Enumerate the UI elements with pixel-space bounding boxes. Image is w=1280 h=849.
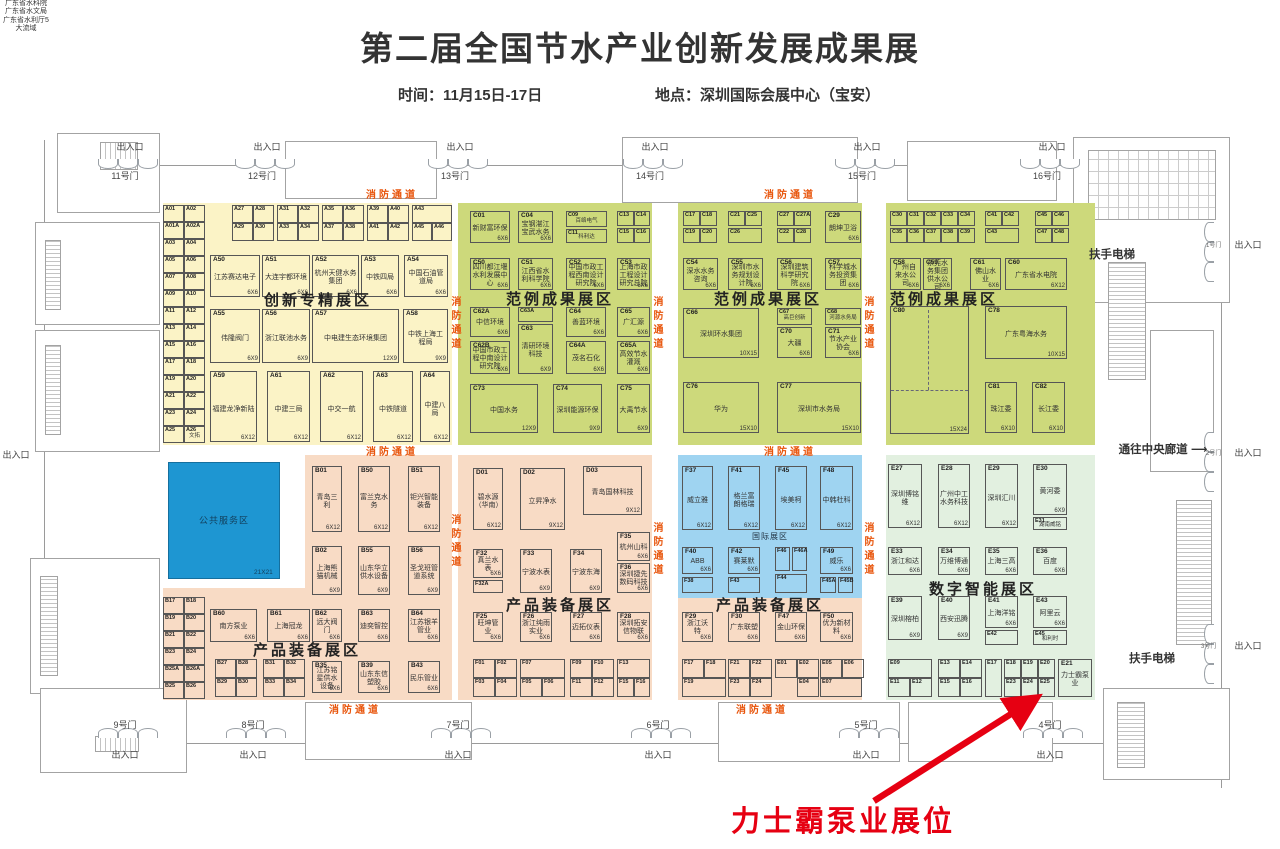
booth-id: E42 <box>987 631 997 638</box>
booth-id: E21 <box>1061 660 1073 668</box>
booth-id: C43 <box>987 229 997 236</box>
booth-F41: F41格兰富 朗格瑞6X12 <box>728 466 760 530</box>
booth-size: 6X12 <box>434 435 448 441</box>
booth-id: F10 <box>594 660 603 667</box>
booth-B18: B18 <box>184 597 205 614</box>
booth-id: E25 <box>1040 679 1050 686</box>
fire-lane-label-v2: 消防通道 <box>860 296 875 352</box>
booth-name: 深圳榕柏 <box>890 616 921 624</box>
booth-id: C41 <box>987 212 997 219</box>
booth-size: 6X9 <box>247 356 258 362</box>
entrance-label-0: 出入口 <box>116 140 143 153</box>
booth-size: 6X6 <box>700 567 711 573</box>
booth-F15: F15 <box>617 678 634 697</box>
booth-name: 高效节水灌溉 <box>619 351 649 367</box>
booth-id: B26 <box>186 683 196 690</box>
booth-id: A51 <box>265 256 277 264</box>
booth-C55: C55深圳市水务规划设计院6X6 <box>728 258 763 290</box>
booth-C04: C04宝钢湛江宝武水务6X6 <box>518 211 553 243</box>
booth-C22: C22 <box>777 228 794 243</box>
booth-E34: E34万维博通6X6 <box>938 547 970 575</box>
booth-id: C61 <box>973 259 985 267</box>
booth-F38: F38 <box>682 577 713 593</box>
booth-name: 阿里云 <box>1035 609 1066 617</box>
booth-id: C82 <box>1035 383 1047 391</box>
booth-name: 西安迅腾 <box>940 616 969 624</box>
booth-F50: F50优为新材料6X6 <box>820 612 853 642</box>
booth-id: C01 <box>473 212 485 220</box>
booth-C13: C13 <box>617 211 634 226</box>
door-label-14号门: 14号门 <box>636 169 664 182</box>
zone-label-digital: 数字智能展区 <box>929 578 1037 599</box>
booth-name: 珠江委 <box>987 406 1016 414</box>
booth-id: A35 <box>324 206 334 213</box>
booth-size: 6X6 <box>329 686 340 692</box>
booth-size: 6X9 <box>377 588 388 594</box>
booth-id: A09 <box>165 291 175 298</box>
booth-C31: C31 <box>907 211 924 226</box>
booth-id: B50 <box>361 467 373 475</box>
fire-lane-label-v3: 消防通道 <box>447 514 462 570</box>
booth-E09: E09 <box>888 659 932 678</box>
booth-name: 江西省水利科学院 <box>520 267 552 283</box>
booth-C58: C58广州自来水公司6X6 <box>890 258 921 290</box>
booth-id: B43 <box>411 662 423 670</box>
booth-id: C45 <box>1037 212 1047 219</box>
booth-A30: A30 <box>253 223 274 241</box>
booth-name: 文拓 <box>185 433 203 439</box>
booth-id: A12 <box>186 308 196 315</box>
booth-name: 大连宇都环境 <box>264 274 308 282</box>
booth-A09: A09 <box>163 290 184 307</box>
booth-id: A25 <box>165 427 175 434</box>
entrance-label-4: 出入口 <box>853 140 880 153</box>
booth-B43: B43民乐管业6X6 <box>408 661 440 693</box>
door-arcs-icon <box>1204 624 1214 684</box>
booth-size: 6X6 <box>1005 621 1016 627</box>
zone-label-service: 公共服务区 <box>199 514 249 527</box>
booth-A43: A43 <box>412 205 452 223</box>
booth-size: 15X10 <box>740 426 757 432</box>
booth-F46A: F46A <box>792 547 807 571</box>
booth-A31: A31 <box>277 205 298 223</box>
booth-name: 华为 <box>685 406 756 414</box>
booth-C59: C59东莞水务集团供水公司6X6 <box>923 258 952 290</box>
booth-C67: C67高巨创新 <box>777 308 812 325</box>
booth-id: E12 <box>912 679 922 686</box>
booth-size: 6X12 <box>374 525 388 531</box>
booth-id: C21 <box>730 212 740 219</box>
booth-id: A07 <box>165 274 175 281</box>
booth-id: A03 <box>165 240 175 247</box>
booth-B62: B62远大阀门6X6 <box>312 609 342 642</box>
booth-id: C16 <box>636 229 646 236</box>
booth-size: 6X12 <box>241 435 255 441</box>
booth-id: A46 <box>434 224 444 231</box>
door-label-1号门: 1号门 <box>1206 240 1221 249</box>
booth-id: C47 <box>1037 229 1047 236</box>
booth-id: F06 <box>544 679 553 686</box>
booth-id: E39 <box>891 597 903 605</box>
booth-F45B: F45B <box>838 577 853 593</box>
booth-E07: E07 <box>820 678 862 697</box>
booth-id: A40 <box>390 206 400 213</box>
booth-id: B31 <box>265 660 275 667</box>
booth-id: C63 <box>521 325 533 333</box>
booth-E06: E06 <box>842 659 864 678</box>
booth-F01: F01 <box>473 659 495 678</box>
booth-C70: C70大疆6X6 <box>777 327 812 358</box>
booth-size: 6X9 <box>329 588 340 594</box>
booth-name: 威立雅 <box>684 497 712 505</box>
booth-A21: A21 <box>163 392 184 409</box>
booth-id: A27 <box>234 206 244 213</box>
booth-id: B02 <box>315 547 327 555</box>
booth-C16: C16 <box>634 228 650 243</box>
booth-A02: A02 <box>184 205 205 222</box>
booth-F03: F03 <box>473 678 495 697</box>
booth-B24: B24 <box>184 648 205 665</box>
booth-name: 大禹节水 <box>619 407 649 415</box>
booth-C01: C01新财富环保6X6 <box>470 211 510 243</box>
booth-A17: A17 <box>163 358 184 375</box>
booth-id: F03 <box>475 679 484 686</box>
booth-name: 江苏赛达电子 <box>212 274 258 282</box>
booth-name: 中电建生态环境集团 <box>315 335 397 343</box>
booth-size: 6X6 <box>637 367 648 373</box>
booth-A13: A13 <box>163 324 184 341</box>
booth-A55: A55伟隆阀门6X9 <box>210 309 260 363</box>
booth-id: A64 <box>423 372 435 380</box>
booth-name: 青岛三利 <box>314 494 341 510</box>
booth-id: F48 <box>823 467 834 475</box>
booth-name: 山东东信塑胶 <box>360 670 389 686</box>
booth-id: F38 <box>684 578 693 585</box>
booth-C39: C39 <box>958 228 975 243</box>
booth-size: 6X6 <box>1054 621 1065 627</box>
booth-id: F21 <box>730 660 739 667</box>
note-0: 扶手电梯 <box>1089 246 1135 262</box>
booth-id: C28 <box>796 229 806 236</box>
booth-C34: C34 <box>958 211 975 226</box>
booth-id: C18 <box>702 212 712 219</box>
fire-lane-label-v4: 消防通道 <box>649 522 664 578</box>
booth-B21: B21 <box>163 631 184 648</box>
booth-name: 浙江和达 <box>890 558 921 566</box>
booth-id: A32 <box>300 206 310 213</box>
booth-id: A53 <box>364 256 376 264</box>
zone-size-service: 21X21 <box>254 569 273 576</box>
booth-size: 6X6 <box>377 686 388 692</box>
booth-id: B27 <box>217 660 227 667</box>
booth-id: F19 <box>684 679 693 686</box>
door-label-16号门: 16号门 <box>1033 169 1061 182</box>
entrance-label-3: 出入口 <box>641 140 668 153</box>
booth-size: 6X6 <box>637 330 648 336</box>
booth-id: C62A <box>473 308 490 316</box>
booth-size: 6X9 <box>589 586 600 592</box>
booth-size: 6X6 <box>840 567 851 573</box>
booth-id: B22 <box>186 632 196 639</box>
booth-id: C39 <box>960 229 970 236</box>
booth-F25: F25旺坤管业6X6 <box>473 612 503 642</box>
booth-id: E35 <box>988 548 1000 556</box>
booth-B02: B02上海熊猫机械6X9 <box>312 546 342 595</box>
booth-A18: A18 <box>184 358 205 375</box>
booth-C64A: C64A茂名石化6X6 <box>566 341 606 374</box>
booth-id: C66 <box>686 309 698 317</box>
booth-B25: B25 <box>163 682 184 699</box>
booth-id: F04 <box>497 679 506 686</box>
fire-lane-label-v5: 消防通道 <box>860 522 875 578</box>
booth-C09: C09百络电气 <box>566 211 607 227</box>
booth-F09: F09 <box>570 659 592 678</box>
booth-id: F22 <box>752 660 761 667</box>
booth-F04: F04 <box>495 678 517 697</box>
booth-id: C38 <box>943 229 953 236</box>
booth-id: E28 <box>941 465 953 473</box>
booth-E23: E23 <box>1004 678 1021 697</box>
booth-E11: E11 <box>888 678 910 697</box>
booth-E42: E42 <box>985 630 1018 645</box>
booth-id: B64 <box>411 610 423 618</box>
booth-name: 上海洋铭 <box>987 609 1017 617</box>
booth-C25: C25 <box>745 211 762 226</box>
booth-id: A13 <box>165 325 175 332</box>
booth-size: 6X12 <box>326 525 340 531</box>
booth-E43: E43阿里云6X6 <box>1033 596 1067 628</box>
booth-size: 6X6 <box>589 635 600 641</box>
door-label-4号门: 4号门 <box>1038 718 1061 731</box>
booth-id: F15 <box>619 679 628 686</box>
booth-B26A: B26A <box>184 665 205 682</box>
booth-C82: C82长江委6X10 <box>1032 382 1065 433</box>
booth-A26: A26文拓 <box>184 426 205 443</box>
booth-E02: E02 <box>797 659 819 678</box>
booth-C52: C52中国市政工程西南设计研究院6X6 <box>566 258 606 290</box>
booth-id: C14 <box>636 212 646 219</box>
booth-name: 民乐管业 <box>410 674 439 682</box>
booth-size: 6X6 <box>593 367 604 373</box>
booth-B35: B35江苏铭星供水设备6X6 <box>312 661 342 693</box>
booth-id: A56 <box>265 310 277 318</box>
booth-B20: B20 <box>184 614 205 631</box>
booth-F34: F34宁波东海6X9 <box>570 549 602 593</box>
booth-F30: F30广东联塑6X6 <box>728 612 760 642</box>
booth-size: 6X6 <box>490 635 501 641</box>
booth-id: C51 <box>521 259 533 267</box>
booth-F22: F22 <box>750 659 772 678</box>
booth-A46: A46 <box>432 223 452 241</box>
booth-C43: C43 <box>985 228 1019 243</box>
booth-size: 6X6 <box>957 568 968 574</box>
booth-D02: D02立昇净水9X12 <box>520 468 565 530</box>
booth-name: 中建八局 <box>422 402 449 418</box>
booth-id: B51 <box>411 467 423 475</box>
booth-A64: A64中建八局6X12 <box>420 371 450 442</box>
booth-name: 清研环境科技 <box>520 343 552 359</box>
booth-A07: A07 <box>163 273 184 290</box>
booth-name: 上海三高 <box>987 558 1017 566</box>
booth-E31: E31湖南威铭 <box>1033 517 1067 530</box>
entrance-label-14: 出入口 <box>1234 446 1261 459</box>
booth-size: 6X6 <box>1054 568 1065 574</box>
booth-size: 6X9 <box>297 356 308 362</box>
booth-name: 中铁上海工程局 <box>405 331 446 347</box>
booth-name: 远大阀门 <box>314 619 341 635</box>
booth-name: 格兰富 朗格瑞 <box>730 493 759 509</box>
booth-id: A63 <box>376 372 388 380</box>
booth-name: 中韩杜科 <box>822 497 852 505</box>
booth-A37: A37 <box>322 223 343 241</box>
booth-size: 6X6 <box>637 554 648 560</box>
booth-id: F13 <box>619 660 628 667</box>
booth-size: 6X12 <box>1051 283 1065 289</box>
door-label-6号门: 6号门 <box>646 718 669 731</box>
booth-id: E04 <box>799 679 809 686</box>
booth-id: C27 <box>779 212 789 219</box>
booth-name: 上海熊猫机械 <box>314 565 341 581</box>
booth-C54: C54深水水务咨询6X6 <box>683 258 718 290</box>
booth-id: E11 <box>890 679 899 686</box>
booth-id: B25A <box>165 666 179 673</box>
booth-id: F40 <box>685 548 696 556</box>
booth-F06: F06 <box>542 678 565 697</box>
booth-id: B56 <box>411 547 423 555</box>
booth-F12: F12 <box>592 678 614 697</box>
door-label-15号门: 15号门 <box>848 169 876 182</box>
booth-id: F18 <box>706 660 715 667</box>
door-arcs-icon <box>98 159 158 169</box>
booth-id: F41 <box>731 467 742 475</box>
booth-size: 6X6 <box>497 236 508 242</box>
booth-A50: A50江苏赛达电子6X6 <box>210 255 260 297</box>
zone-label-equipment-3: 产品装备展区 <box>716 594 824 615</box>
c80-divider-h <box>891 390 968 391</box>
fire-lane-label-h3: 消防通道 <box>764 443 816 458</box>
booth-id: A23 <box>165 410 175 417</box>
note-1: 扶手电梯 <box>1129 650 1175 666</box>
booth-id: E36 <box>1036 548 1048 556</box>
booth-id: C74 <box>556 385 568 393</box>
booth-id: C64A <box>569 342 586 350</box>
door-arcs-icon <box>235 159 295 169</box>
booth-size: 6X12 <box>397 435 411 441</box>
booth-id: A11 <box>165 308 175 315</box>
booth-id: E24 <box>1023 679 1033 686</box>
booth-id: A02 <box>186 206 196 213</box>
booth-name: 节水产业协会 <box>827 336 860 352</box>
door-label-5号门: 5号门 <box>854 718 877 731</box>
entrance-label-7: 出入口 <box>239 748 266 761</box>
booth-name: 河源水务局 <box>827 315 860 321</box>
door-label-2号门: 2号门 <box>1206 448 1221 457</box>
booth-id: B60 <box>213 610 225 618</box>
booth-name: 伟隆阀门 <box>212 335 258 343</box>
booth-id: A01 <box>165 206 175 213</box>
booth-size: 6X12 <box>697 523 711 529</box>
booth-id: A08 <box>186 274 196 281</box>
booth-size: 6X6 <box>490 571 501 577</box>
booth-A19: A19 <box>163 375 184 392</box>
booth-id: B61 <box>270 610 282 618</box>
booth-B27: B27 <box>215 659 236 678</box>
booth-C42: C42 <box>1002 211 1019 226</box>
booth-E40: E40西安迅腾6X9 <box>938 596 970 640</box>
entrance-label-1: 出入口 <box>253 140 280 153</box>
entrance-label-11: 出入口 <box>1036 748 1063 761</box>
entrance-label-9: 出入口 <box>644 748 671 761</box>
booth-A61: A61中建三局6X12 <box>267 371 310 442</box>
booth-B60: B60南方泵业6X6 <box>210 609 257 642</box>
entrance-label-13: 出入口 <box>1234 238 1261 251</box>
booth-F46: F46 <box>775 547 790 571</box>
booth-id: B23 <box>165 649 175 656</box>
booth-A33: A33 <box>277 223 298 241</box>
booth-id: E23 <box>1006 679 1016 686</box>
fire-lane-label-h2: 消防通道 <box>366 443 418 458</box>
booth-B26: B26 <box>184 682 205 699</box>
booth-E36: E36百度6X6 <box>1033 547 1067 575</box>
door-arcs-icon <box>428 159 488 169</box>
booth-A39: A39 <box>367 205 388 223</box>
booth-F24: F24 <box>750 678 772 697</box>
booth-id: F07 <box>522 660 531 667</box>
booth-name: 南方泵业 <box>212 623 255 631</box>
booth-name: 中铁四局 <box>363 274 398 282</box>
booth-size: 6X6 <box>1005 568 1016 574</box>
booth-id: A54 <box>407 256 419 264</box>
booth-D01: D01碧水源（华南）6X12 <box>473 468 503 530</box>
booth-E19: E19 <box>1021 659 1038 678</box>
booth-id: A42 <box>390 224 400 231</box>
booth-A22: A22 <box>184 392 205 409</box>
booth-name: 山东华立供水设备 <box>360 565 389 581</box>
booth-F10: F10 <box>592 659 614 678</box>
booth-id: C75 <box>620 385 632 393</box>
booth-F26: F26浙江纯雨实业6X6 <box>520 612 552 642</box>
booth-name: 佛山水业 <box>972 267 1000 283</box>
booth-A45: A45 <box>412 223 432 241</box>
booth-id: A06 <box>186 257 196 264</box>
booth-size: 6X12 <box>837 523 851 529</box>
booth-id: F46A <box>794 548 807 555</box>
door-label-12号门: 12号门 <box>248 169 276 182</box>
booth-id: A22 <box>186 393 196 400</box>
booth-size: 15X10 <box>842 426 859 432</box>
booth-id: C42 <box>1004 212 1014 219</box>
booth-C48: C48 <box>1052 228 1069 243</box>
fire-lane-label-v1: 消防通道 <box>649 296 664 352</box>
booth-id: C64 <box>569 308 581 316</box>
booth-name: 上海冠龙 <box>269 623 308 631</box>
booth-size: 6X6 <box>247 290 258 296</box>
booth-size: 6X6 <box>637 586 648 592</box>
booth-C20: C20 <box>700 228 717 243</box>
booth-size: 6X9 <box>909 633 920 639</box>
booth-C75: C75大禹节水6X9 <box>617 384 650 433</box>
booth-id: E33 <box>891 548 903 556</box>
booth-id: B25 <box>165 683 175 690</box>
booth-C53: C53上海市政工程设计研究总院6X6 <box>617 258 650 290</box>
booth-id: B28 <box>238 660 248 667</box>
booth-id: C63A <box>520 308 534 315</box>
booth-C81: C81珠江委6X10 <box>985 382 1017 433</box>
booth-C35: C35 <box>890 228 907 243</box>
booth-size: 6X6 <box>637 635 648 641</box>
booth-A58: A58中铁上海工程局9X9 <box>403 309 448 363</box>
booth-id: C73 <box>473 385 485 393</box>
